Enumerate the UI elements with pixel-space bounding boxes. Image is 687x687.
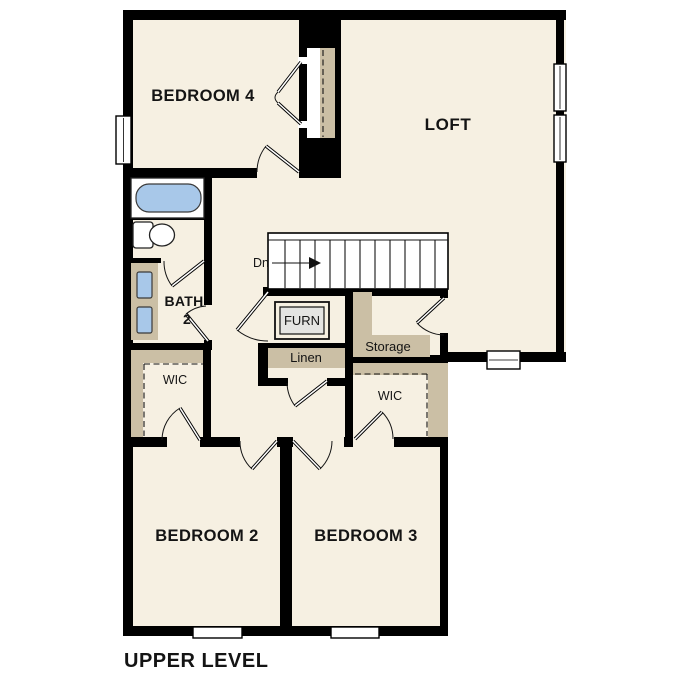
wic-left-shelf-top [131, 350, 203, 363]
stair-outline [268, 233, 448, 289]
room-label-furnace: FURN [284, 313, 320, 328]
wall-hall-storage-divider [345, 288, 353, 443]
wall-bath-right-upper [204, 178, 212, 305]
wall-bedrooms-top-e [394, 437, 448, 447]
window-bedroom2 [193, 627, 242, 638]
wall-linen-left [258, 350, 268, 386]
sink-icon [137, 272, 152, 298]
stairs-down-label: Dn [253, 256, 269, 270]
wic-right-shelf-side [428, 363, 448, 437]
wall-bedroom-divider [280, 447, 292, 626]
room-label-bedroom2: BEDROOM 2 [155, 527, 259, 545]
toilet-bowl-icon [150, 224, 175, 246]
bedroom4-closet-shelf [320, 48, 335, 138]
wall-top [123, 10, 566, 20]
wall-bath-bottom [123, 343, 211, 350]
wall-bedroom4-bottom [123, 168, 257, 178]
wall-bedrooms-top-d [344, 437, 353, 447]
room-label-loft: LOFT [425, 115, 472, 134]
wall-wic-left-right [203, 350, 211, 437]
room-label-bath-line1: BATH [164, 293, 203, 309]
wic-left-shelf-side [131, 350, 143, 437]
wall-toilet-compartment [131, 258, 161, 263]
wall-loft-right [556, 10, 564, 362]
room-label-bedroom4: BEDROOM 4 [151, 87, 255, 105]
room-label-linen: Linen [290, 350, 322, 365]
wall-bedrooms-top-b [200, 437, 240, 447]
window-bedroom3 [331, 627, 379, 638]
wall-linen-bottom-left [268, 378, 288, 386]
bathtub-icon [136, 184, 201, 212]
room-label-wic-left: WIC [163, 373, 187, 387]
wall-bottom [123, 626, 448, 636]
wall-bedroom3-right [440, 443, 448, 636]
bedroom4-closet-niche [307, 48, 320, 138]
wall-bedrooms-top-c [277, 437, 293, 447]
page-title: UPPER LEVEL [124, 650, 268, 672]
sink-icon [137, 307, 152, 333]
room-label-storage: Storage [365, 339, 411, 354]
floor-plan-page: BEDROOM 4 LOFT BATH 2 Dn FURN Linen Stor… [0, 0, 687, 687]
storage-shelf-vertical [353, 292, 372, 337]
room-label-wic-right: WIC [378, 389, 402, 403]
floor-plan-drawing: BEDROOM 4 LOFT BATH 2 Dn FURN Linen Stor… [0, 0, 687, 687]
wall-linen-bottom-right [327, 378, 345, 386]
staircase [268, 233, 448, 289]
room-label-bedroom3: BEDROOM 3 [314, 527, 418, 545]
wall-bedrooms-top-a [123, 437, 167, 447]
room-label-bath-line2: 2 [183, 311, 191, 327]
